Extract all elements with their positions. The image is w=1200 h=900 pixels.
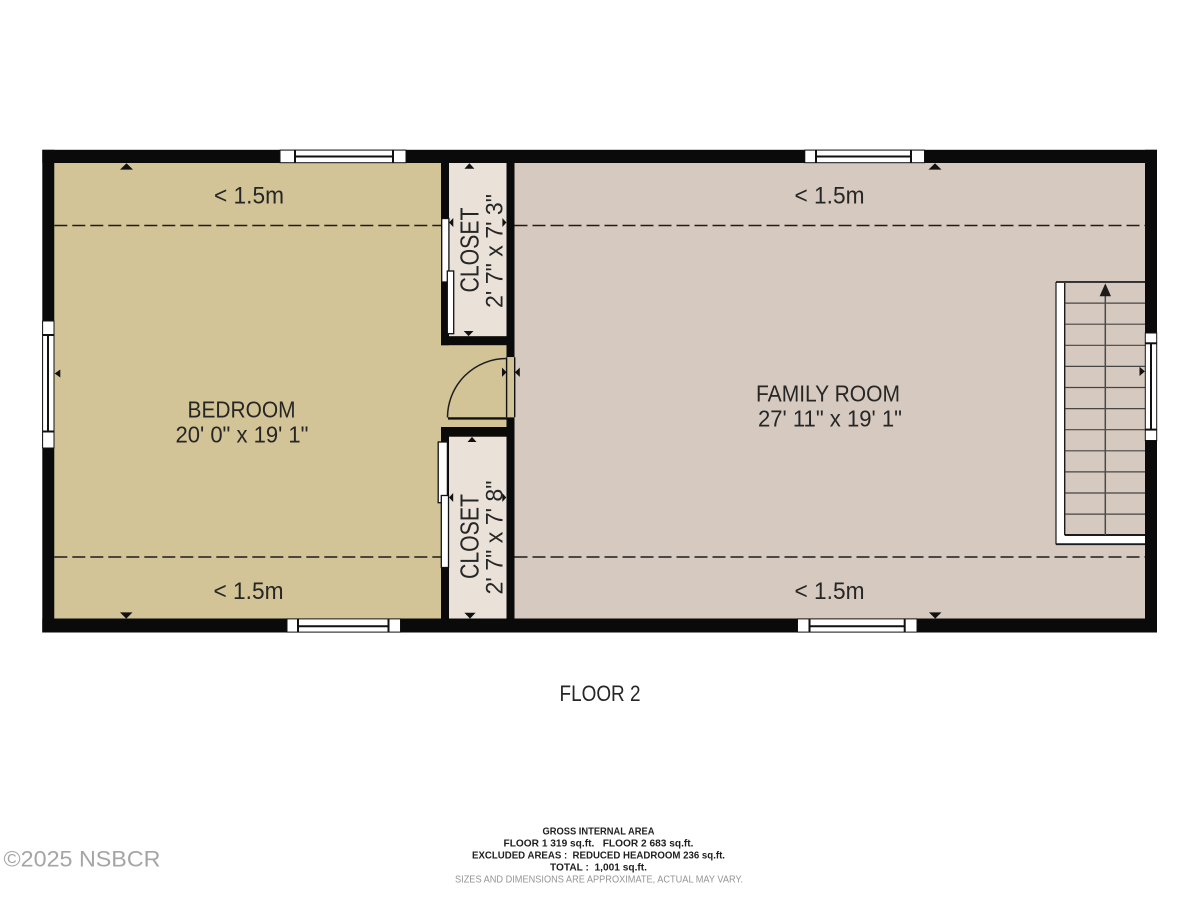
svg-text:20' 0" x 19' 1": 20' 0" x 19' 1"	[176, 422, 309, 448]
svg-text:< 1.5m: < 1.5m	[214, 183, 284, 210]
svg-text:< 1.5m: < 1.5m	[214, 578, 284, 605]
svg-text:2' 7" x 7' 8": 2' 7" x 7' 8"	[482, 481, 509, 595]
svg-text:TOTAL : 1,001 sq.ft.: TOTAL : 1,001 sq.ft.	[550, 862, 647, 874]
svg-text:< 1.5m: < 1.5m	[795, 183, 865, 210]
svg-text:SIZES AND DIMENSIONS ARE APPRO: SIZES AND DIMENSIONS ARE APPROXIMATE, AC…	[455, 874, 743, 886]
svg-text:BEDROOM: BEDROOM	[188, 397, 296, 423]
svg-text:FLOOR 1 319 sq.ft. FLOOR 2 6: FLOOR 1 319 sq.ft. FLOOR 2 683 sq.ft.	[504, 838, 694, 850]
svg-text:©2025 NSBCR: ©2025 NSBCR	[4, 847, 161, 872]
svg-text:EXCLUDED AREAS : REDUCED HEAD: EXCLUDED AREAS : REDUCED HEADROOM 236 sq…	[472, 850, 725, 862]
svg-text:FLOOR 2: FLOOR 2	[560, 681, 641, 706]
svg-text:FAMILY ROOM: FAMILY ROOM	[756, 381, 900, 407]
svg-text:2' 7" x 7' 3": 2' 7" x 7' 3"	[482, 194, 509, 308]
svg-text:27' 11" x 19' 1": 27' 11" x 19' 1"	[758, 406, 902, 432]
svg-text:CLOSET: CLOSET	[457, 208, 485, 293]
svg-text:CLOSET: CLOSET	[457, 494, 485, 579]
svg-text:< 1.5m: < 1.5m	[795, 578, 865, 605]
svg-text:GROSS INTERNAL AREA: GROSS INTERNAL AREA	[543, 826, 655, 838]
